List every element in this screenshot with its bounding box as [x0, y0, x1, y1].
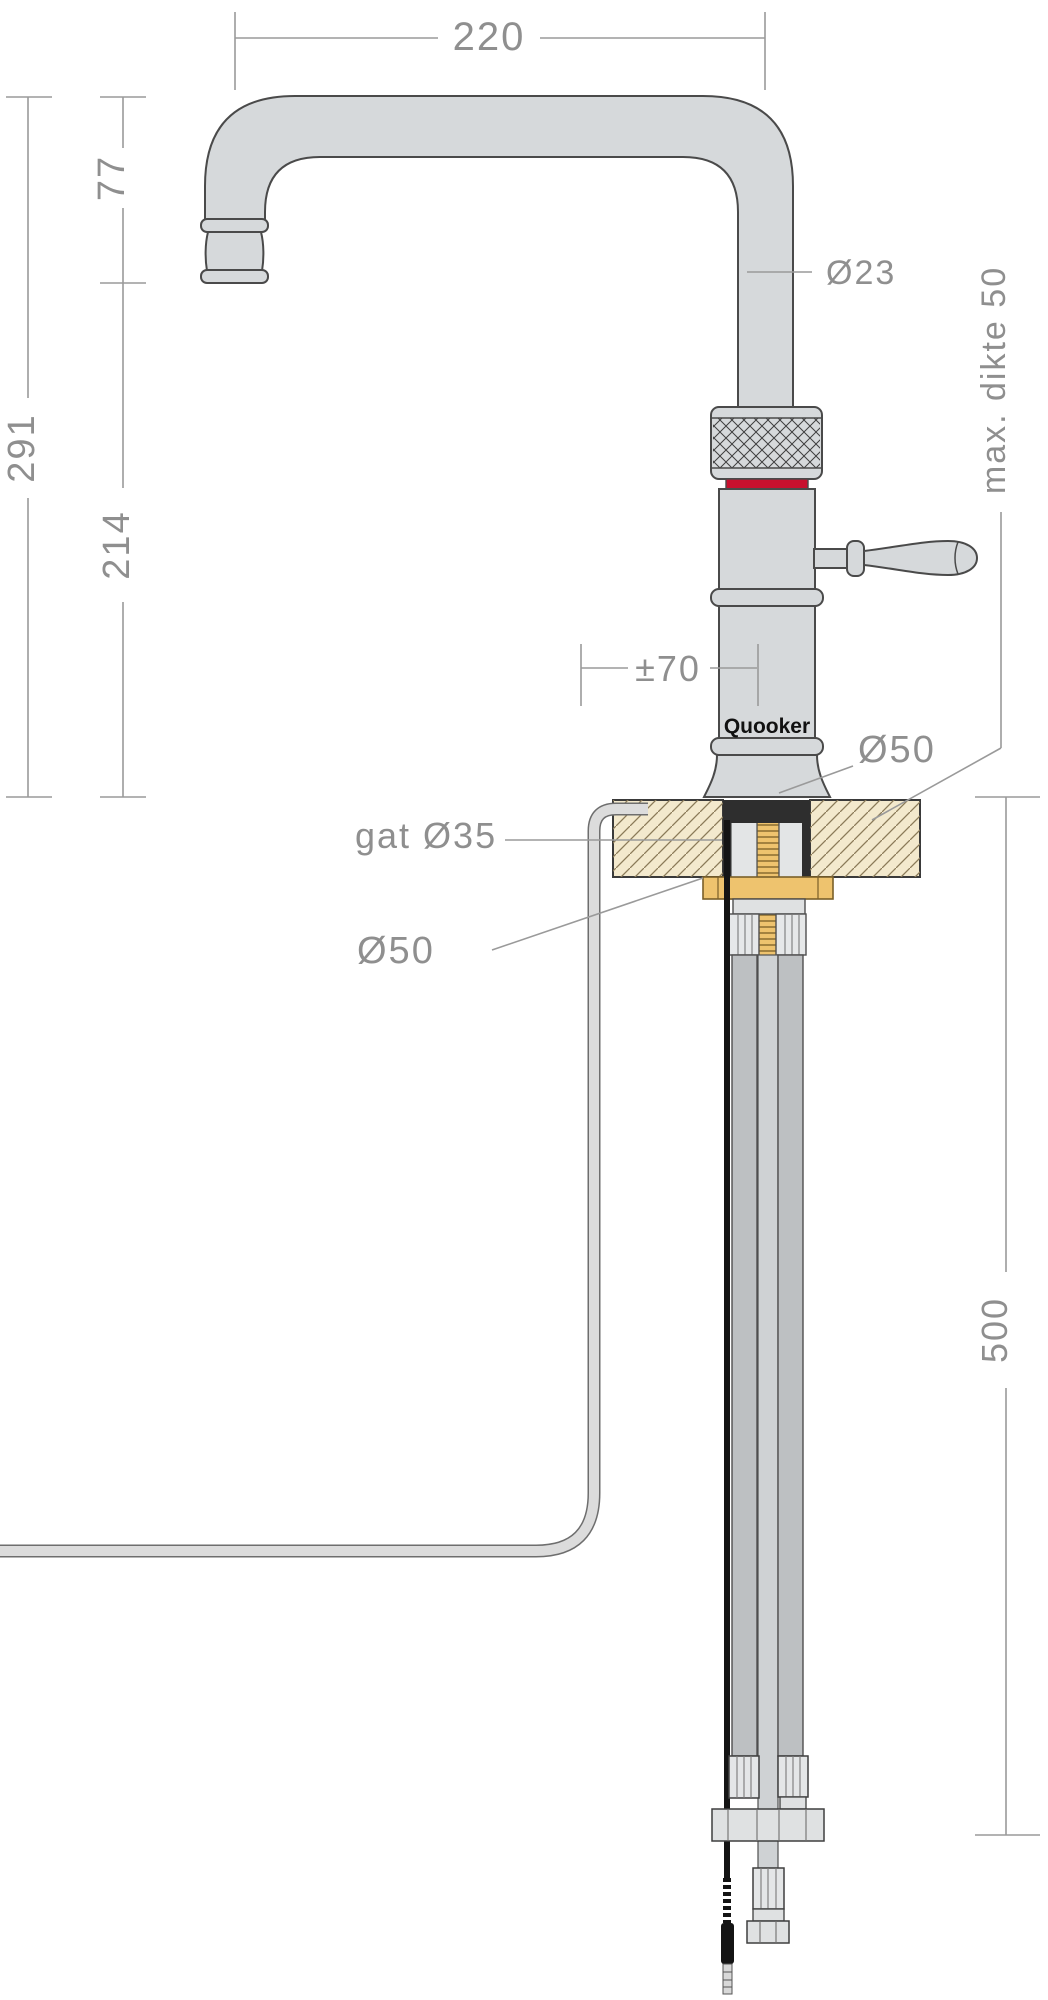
- red-indicator-ring: [726, 479, 808, 489]
- label-spout-reach: 220: [453, 15, 526, 59]
- label-outlet-height: 214: [96, 510, 138, 579]
- label-below-worktop: 500: [974, 1297, 1015, 1363]
- left-hose: [732, 955, 757, 1756]
- label-hole-diameter: gat Ø35: [355, 815, 497, 856]
- spout-outlet: [201, 219, 268, 283]
- faucet-dimension-diagram: Quooker: [0, 0, 1048, 2000]
- technical-drawing-page: Quooker: [0, 0, 1048, 2000]
- knurled-nut: [711, 407, 822, 479]
- lever-handle: [814, 541, 977, 576]
- center-hose: [758, 955, 778, 1868]
- brand-logo: Quooker: [724, 715, 810, 738]
- body-bead-ring: [711, 589, 823, 606]
- label-total-height: 291: [1, 413, 43, 482]
- label-spout-drop: 77: [91, 155, 133, 201]
- label-spout-diameter: Ø23: [826, 254, 896, 292]
- right-hose: [778, 955, 803, 1756]
- label-escutcheon-diameter: Ø50: [357, 930, 435, 972]
- label-swivel-range: ±70: [635, 648, 701, 689]
- faucet-spout-arch: [205, 96, 793, 410]
- base-skirt: [704, 755, 830, 797]
- label-max-thickness: max. dikte 50: [975, 266, 1013, 494]
- cable-plug-end: [721, 1878, 734, 1994]
- upper-body: [719, 489, 815, 591]
- base-bead-ring: [711, 738, 823, 755]
- label-base-diameter-top: Ø50: [858, 729, 936, 771]
- brass-fixing-nut: [703, 877, 833, 899]
- electric-cable-black: [724, 820, 730, 1878]
- flexible-cable: [0, 809, 648, 1551]
